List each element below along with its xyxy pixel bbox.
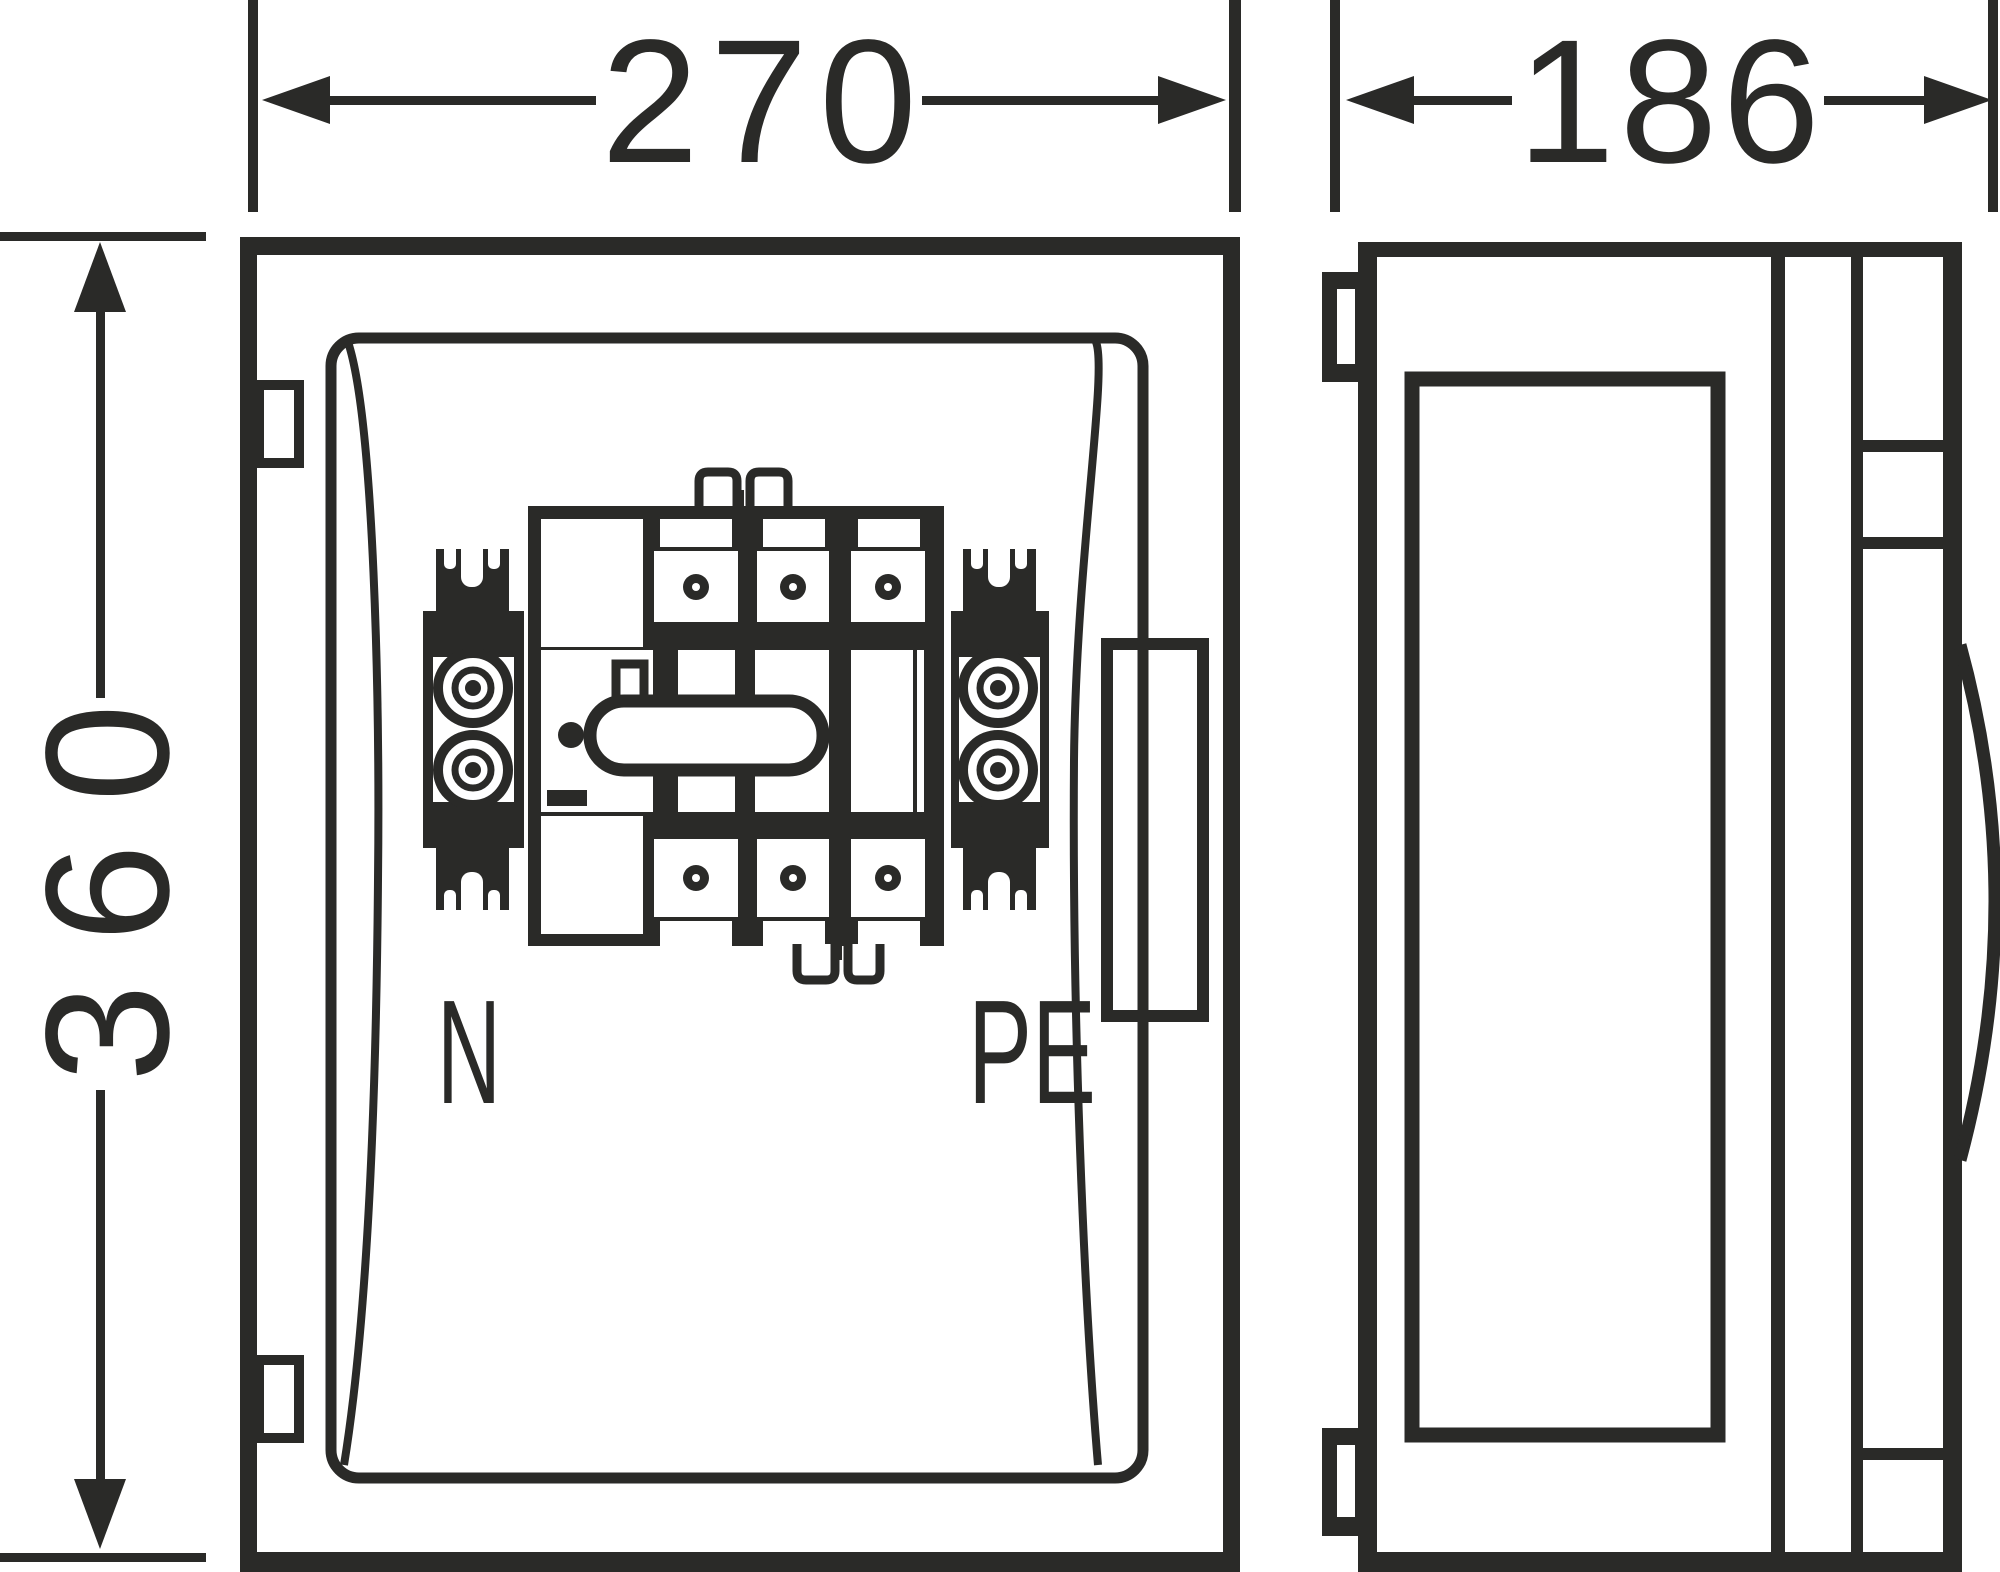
- fork-notch: [1015, 890, 1027, 920]
- arrowhead-right-icon: [1924, 76, 1992, 124]
- pole-window: [660, 519, 732, 547]
- dimension-width-value: 270: [601, 4, 919, 200]
- dimension-line-left: [326, 96, 596, 105]
- fork-notch: [444, 539, 456, 569]
- dimension-line-lower: [96, 1090, 105, 1480]
- side-hinge-slot: [1337, 289, 1355, 364]
- dimension-height-360: 360: [0, 232, 206, 1562]
- side-wall-right: [1943, 242, 1962, 1552]
- din-clip-top-right: [750, 472, 788, 508]
- pole-window: [763, 921, 825, 946]
- fork-notch: [488, 539, 500, 569]
- arrowhead-left-icon: [1346, 76, 1414, 124]
- extension-line-right: [1988, 0, 1998, 212]
- mechanism-window-bottom: [541, 816, 643, 934]
- dimension-depth-value: 186: [1517, 4, 1822, 200]
- pole-window: [851, 650, 913, 812]
- fork-notch: [971, 890, 983, 920]
- fork-notch-center: [461, 533, 483, 587]
- screw-center: [990, 680, 1006, 696]
- fork-notch: [971, 539, 983, 569]
- clip-nub: [838, 946, 842, 960]
- pole-window: [763, 519, 825, 547]
- screw-dot-center: [692, 583, 700, 591]
- arrowhead-right-icon: [1158, 76, 1226, 124]
- enclosure-dimension-drawing: 270 186 360: [0, 0, 2000, 1572]
- enclosure-wall-right: [1223, 237, 1240, 1572]
- terminal-block-earth: [951, 533, 1049, 926]
- screw-dot-center: [692, 874, 700, 882]
- terminal-block-neutral: [423, 533, 524, 926]
- clip-nub: [739, 490, 744, 506]
- dimension-width-270: 270: [248, 0, 1241, 212]
- pole-window: [858, 519, 920, 547]
- arrowhead-down-icon: [74, 1479, 126, 1549]
- side-door-bulge-arc: [1960, 645, 1995, 1160]
- dimension-line-upper: [96, 308, 105, 698]
- mechanism-window-top: [541, 519, 643, 647]
- enclosure-wall-top: [240, 237, 1240, 255]
- screw-dot-center: [789, 874, 797, 882]
- side-divider-door: [1851, 257, 1863, 1552]
- pole-window-slot: [917, 650, 924, 812]
- hinge-tab-top: [259, 385, 299, 463]
- enclosure-wall-bottom: [240, 1552, 1240, 1572]
- side-view: [1322, 242, 1995, 1572]
- arrowhead-left-icon: [262, 76, 330, 124]
- fork-notch-center: [988, 533, 1010, 587]
- extension-tick-top: [0, 232, 206, 241]
- dimension-line-left: [1410, 96, 1512, 105]
- fork-notch: [444, 890, 456, 920]
- technical-drawing-canvas: 270 186 360: [0, 0, 2000, 1572]
- screw-dot-center: [789, 583, 797, 591]
- door-strip-line: [1863, 1448, 1943, 1460]
- side-wall-left: [1358, 242, 1377, 1572]
- handle-notch: [547, 790, 587, 806]
- side-divider-inner: [1771, 257, 1785, 1552]
- arrowhead-up-icon: [74, 242, 126, 312]
- door-strip-line: [1863, 537, 1943, 549]
- extension-line-left: [248, 0, 258, 212]
- fork-notch: [1015, 539, 1027, 569]
- side-wall-top: [1358, 242, 1962, 257]
- din-clip-bottom-left: [797, 944, 835, 980]
- clip-nub: [844, 946, 848, 960]
- handle-pivot: [558, 722, 584, 748]
- fork-notch-center: [988, 872, 1010, 926]
- side-recess-panel: [1412, 379, 1718, 1435]
- front-view: N PE: [240, 237, 1240, 1572]
- dimension-line-right: [1824, 96, 1926, 105]
- switch-disconnector: [528, 472, 944, 980]
- din-clip-top-left: [699, 472, 737, 508]
- extension-line-right: [1229, 0, 1241, 212]
- door-strip-line: [1863, 440, 1943, 452]
- side-hinge-slot: [1337, 1445, 1355, 1517]
- din-clip-bottom-right: [848, 944, 880, 980]
- rotary-handle: [590, 701, 823, 770]
- screw-center: [990, 762, 1006, 778]
- dimension-height-value: 360: [10, 702, 206, 1082]
- clip-nub: [747, 490, 752, 506]
- screw-center: [465, 762, 481, 778]
- fork-notch-center: [461, 872, 483, 926]
- hinge-tab-bottom: [259, 1360, 299, 1438]
- fork-notch: [488, 890, 500, 920]
- extension-tick-bottom: [0, 1553, 206, 1562]
- side-enclosure-body: [1358, 242, 1962, 1572]
- side-wall-bottom: [1358, 1552, 1962, 1572]
- pole-window: [858, 921, 920, 946]
- screw-center: [465, 680, 481, 696]
- dimension-depth-186: 186: [1330, 0, 1998, 212]
- extension-line-left: [1330, 0, 1340, 212]
- pole-window: [660, 921, 732, 946]
- screw-dot-center: [884, 583, 892, 591]
- label-neutral: N: [437, 970, 501, 1135]
- screw-dot-center: [884, 874, 892, 882]
- label-earth: PE: [968, 970, 1096, 1135]
- dimension-line-right: [922, 96, 1160, 105]
